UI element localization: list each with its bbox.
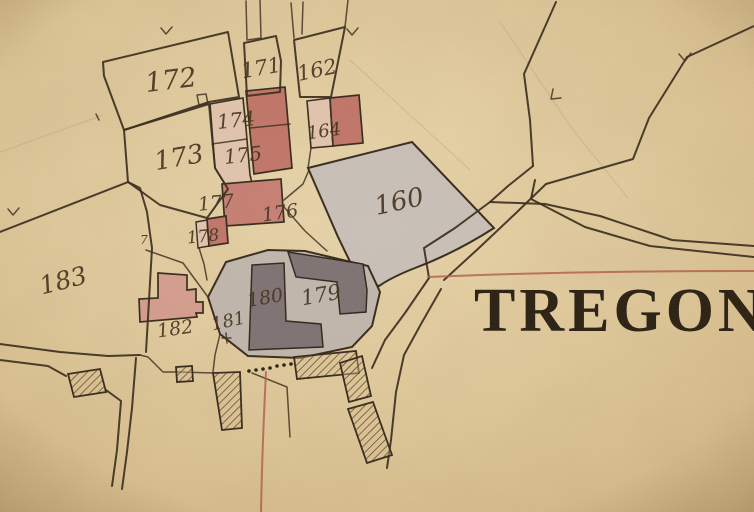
parcel-number-label: 178 (186, 225, 221, 248)
place-name-label: TREGON (474, 277, 754, 345)
parcel-number-label: 177 (197, 190, 236, 216)
map-canvas: 172 171 162 174 173 175 164 160 177 176 … (0, 0, 754, 512)
hatched-wall (68, 369, 106, 397)
cadastral-map: 172 171 162 174 173 175 164 160 177 176 … (0, 0, 754, 512)
parcel-number-label: 174 (216, 106, 256, 134)
hatched-wall (176, 366, 193, 382)
parcel-number-label: 172 (143, 62, 198, 99)
boundary-mark-label: 7 (140, 233, 148, 247)
parcel-number-label: 175 (223, 141, 263, 169)
